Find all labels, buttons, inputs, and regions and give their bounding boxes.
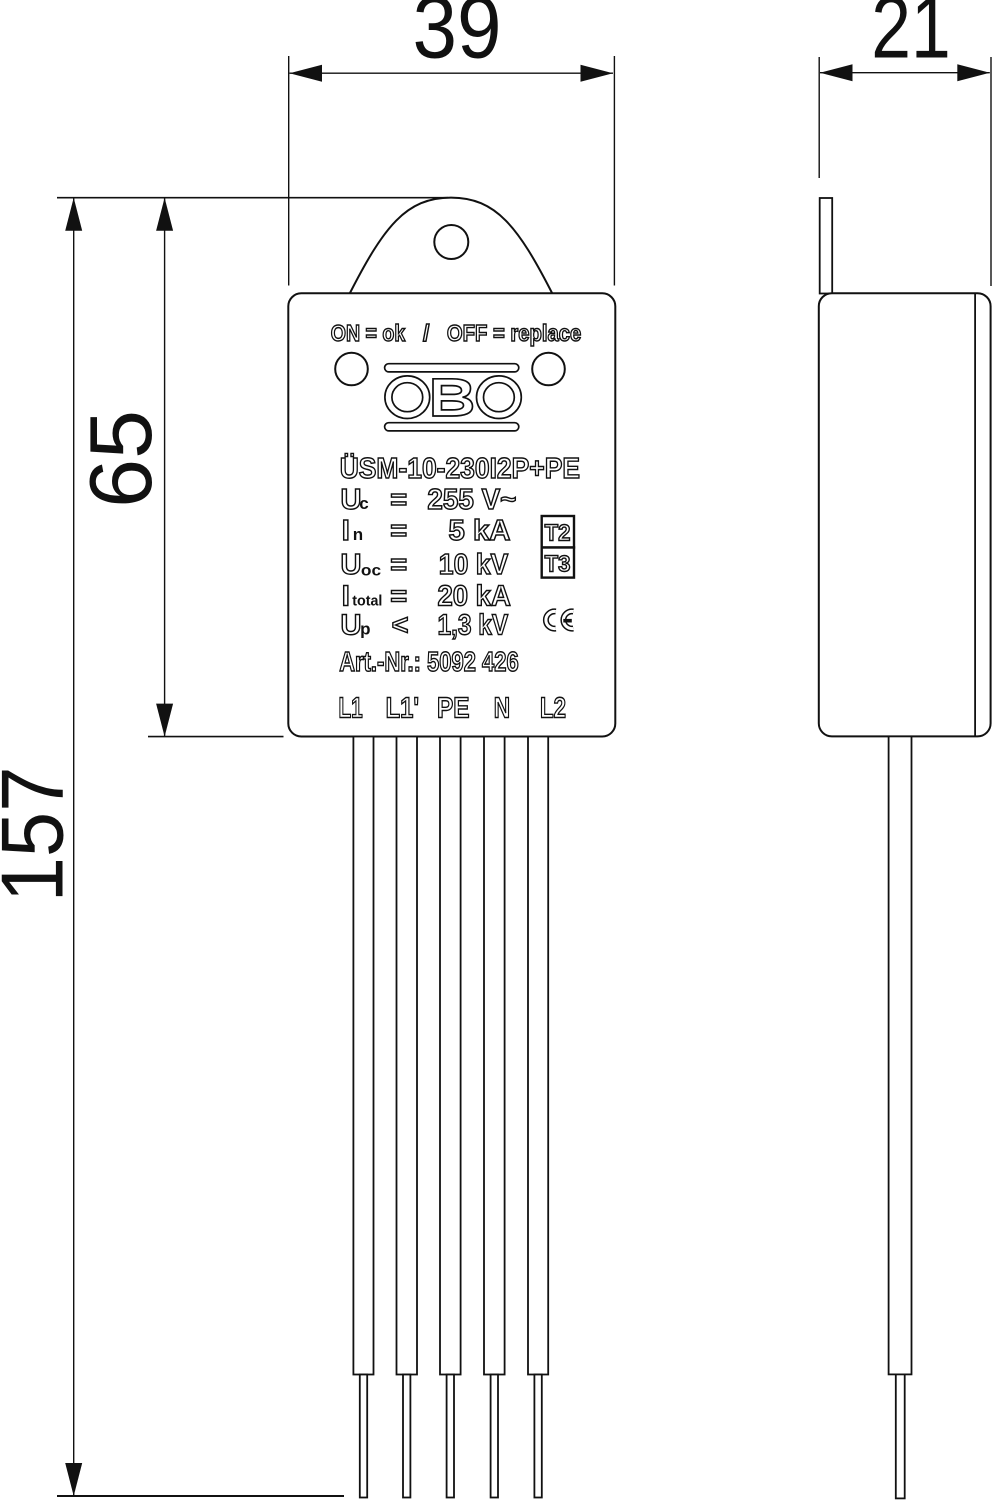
svg-text:T2: T2: [545, 519, 571, 545]
svg-text:<: <: [392, 609, 409, 641]
svg-text:ÜSM-10-230I2P+PE: ÜSM-10-230I2P+PE: [340, 452, 580, 485]
svg-text:I: I: [342, 581, 350, 613]
svg-text:1,3 kV: 1,3 kV: [438, 609, 509, 641]
svg-text:=: =: [390, 484, 407, 516]
svg-text:n: n: [353, 525, 363, 544]
svg-text:10 kV: 10 kV: [439, 549, 508, 581]
svg-text:c: c: [359, 494, 368, 513]
svg-text:OFF = replace: OFF = replace: [447, 320, 581, 346]
svg-text:total: total: [352, 593, 382, 610]
svg-text:U: U: [341, 609, 362, 641]
svg-text:T3: T3: [545, 551, 571, 577]
svg-text:Art.-Nr.: 5092 426: Art.-Nr.: 5092 426: [339, 646, 519, 677]
svg-text:21: 21: [871, 0, 951, 77]
svg-text:20 kA: 20 kA: [438, 581, 511, 613]
svg-text:N: N: [494, 692, 510, 724]
svg-text:L2: L2: [540, 692, 566, 724]
svg-text:=: =: [390, 515, 407, 547]
svg-text:L1: L1: [339, 692, 363, 724]
svg-text:=: =: [390, 581, 407, 613]
svg-text:p: p: [360, 619, 370, 638]
svg-text:65: 65: [71, 410, 170, 508]
svg-text:L1': L1': [386, 692, 419, 724]
svg-text:/: /: [423, 320, 430, 346]
svg-text:ON = ok: ON = ok: [331, 320, 406, 346]
svg-text:PE: PE: [437, 692, 470, 724]
svg-text:U: U: [341, 549, 362, 581]
svg-text:255 V~: 255 V~: [427, 484, 516, 516]
svg-text:39: 39: [413, 0, 502, 77]
svg-text:I: I: [342, 515, 350, 547]
svg-text:5 kA: 5 kA: [449, 515, 511, 547]
svg-text:=: =: [390, 549, 407, 581]
svg-text:oc: oc: [361, 562, 381, 579]
svg-text:U: U: [341, 484, 362, 516]
svg-text:157: 157: [0, 766, 82, 902]
